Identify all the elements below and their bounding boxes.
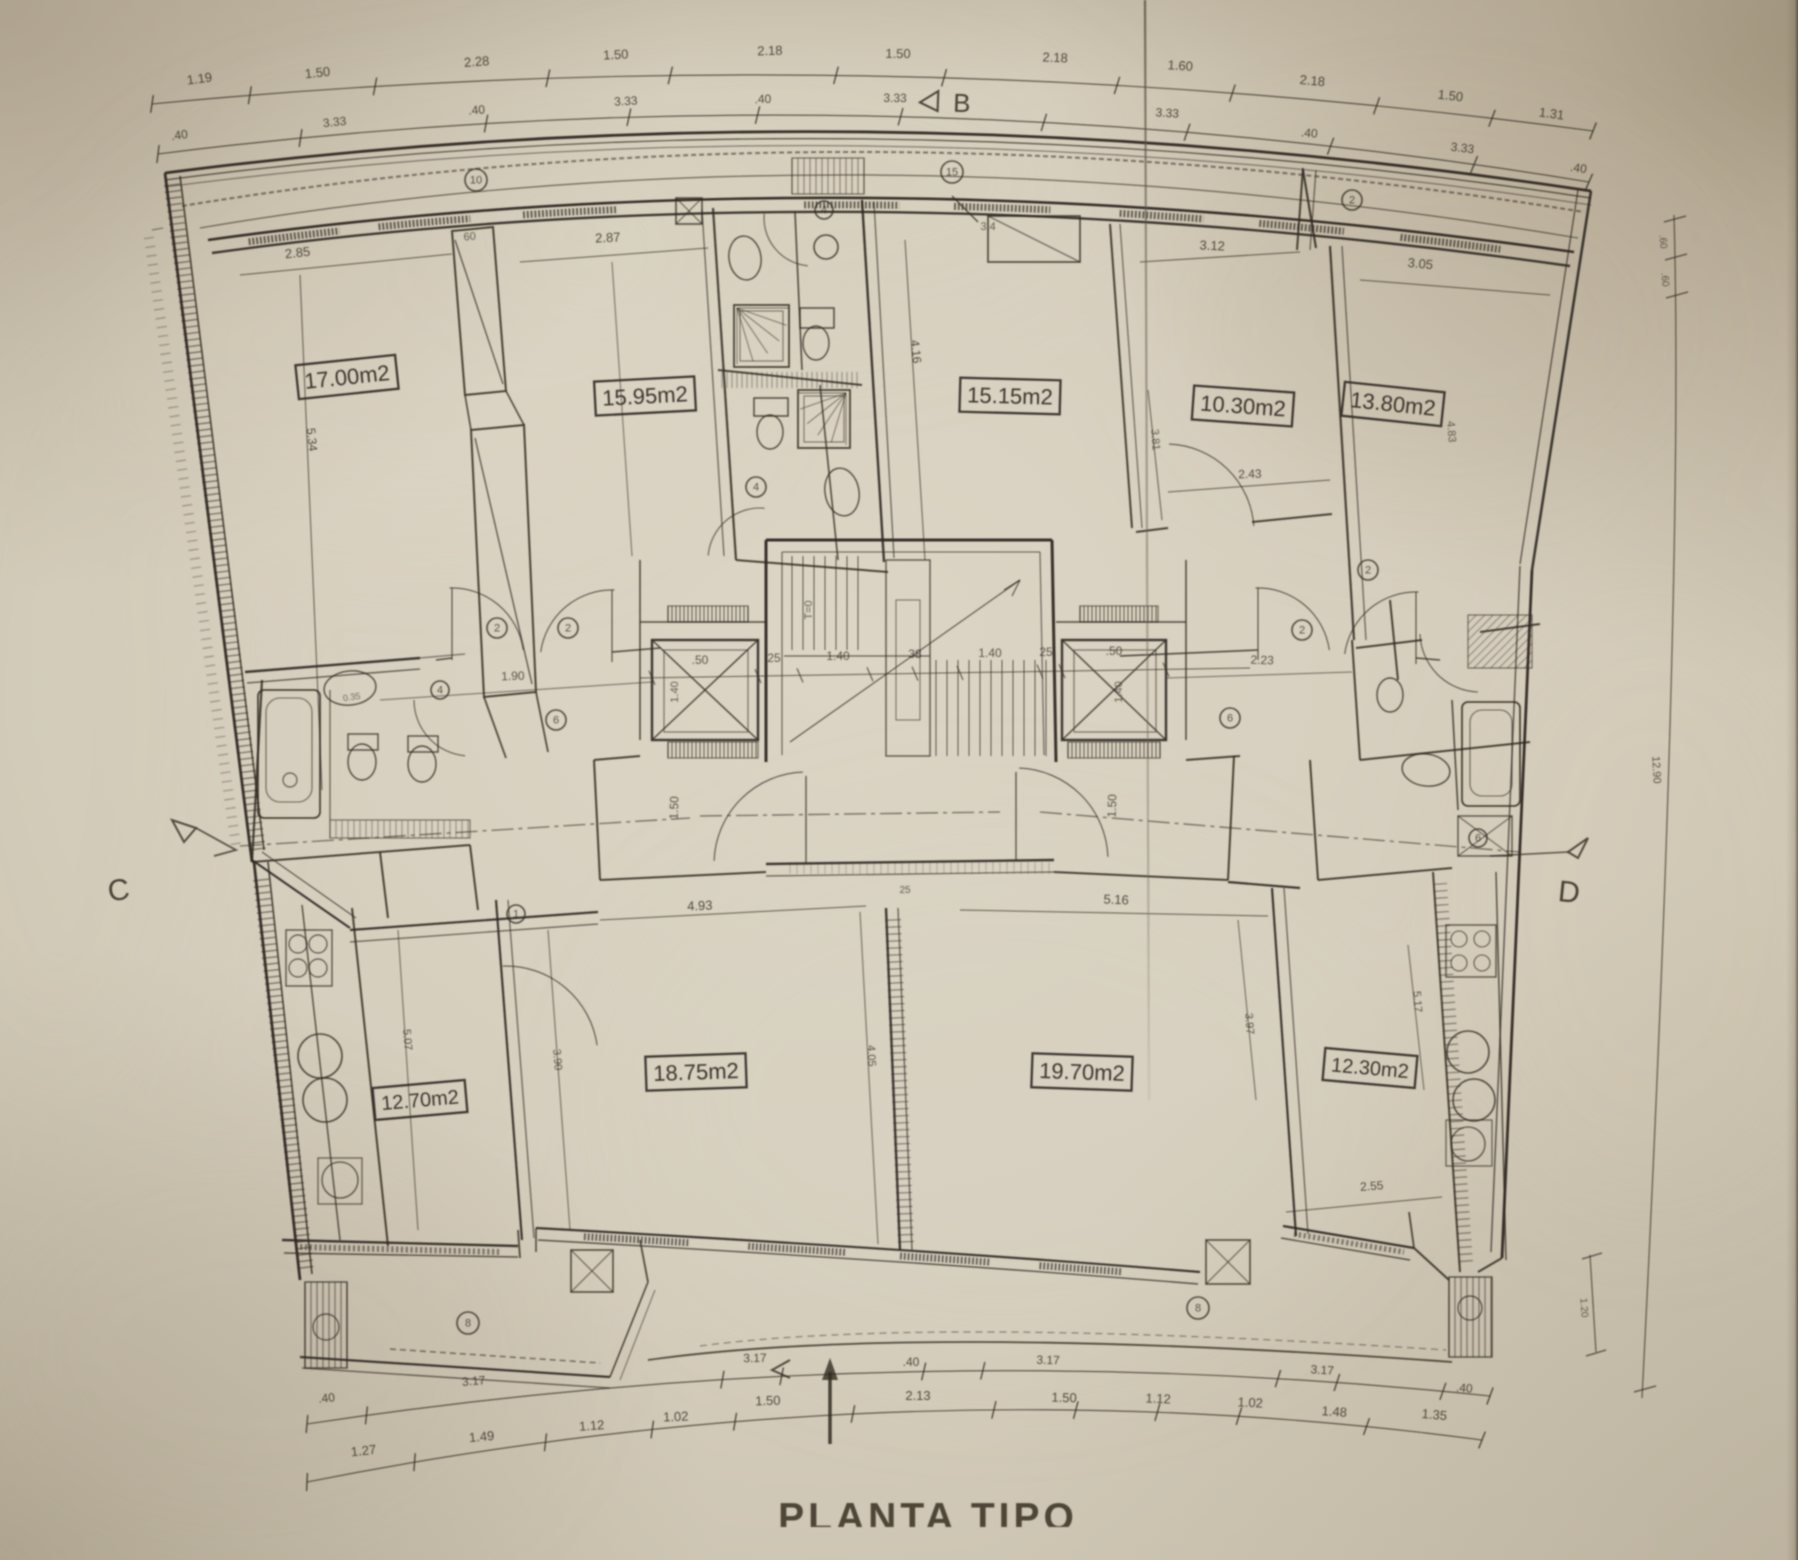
svg-text:3.81: 3.81 (1148, 429, 1161, 451)
svg-text:2.18: 2.18 (1299, 72, 1326, 89)
svg-text:3.33: 3.33 (1155, 105, 1179, 120)
svg-text:1: 1 (513, 909, 519, 921)
svg-text:3.05: 3.05 (1407, 255, 1434, 272)
svg-text:15.15m2: 15.15m2 (967, 382, 1053, 409)
svg-text:8: 8 (465, 1318, 471, 1330)
svg-text:1.50: 1.50 (1051, 1390, 1077, 1406)
svg-text:1.40: 1.40 (669, 681, 681, 702)
svg-text:6: 6 (553, 715, 559, 727)
svg-text:1.50: 1.50 (885, 46, 910, 61)
svg-text:1.48: 1.48 (1321, 1403, 1347, 1420)
svg-text:.40: .40 (468, 102, 486, 117)
svg-text:3.33: 3.33 (883, 91, 907, 105)
svg-text:2.85: 2.85 (284, 244, 311, 262)
svg-text:4.16: 4.16 (908, 339, 924, 364)
svg-text:3.17: 3.17 (743, 1351, 767, 1365)
svg-text:1.40: 1.40 (1113, 681, 1125, 702)
svg-text:1.50: 1.50 (304, 64, 331, 82)
svg-text:3.12: 3.12 (1199, 237, 1225, 253)
svg-text:1.27: 1.27 (350, 1442, 377, 1460)
svg-text:1.50: 1.50 (1105, 794, 1120, 818)
svg-text:5.34: 5.34 (304, 427, 320, 452)
svg-text:D: D (1556, 875, 1581, 910)
svg-text:19.70m2: 19.70m2 (1039, 1058, 1125, 1086)
svg-text:.40: .40 (318, 1390, 336, 1406)
svg-text:38: 38 (908, 647, 922, 661)
svg-text:.40: .40 (170, 127, 189, 143)
svg-text:2.87: 2.87 (595, 229, 621, 245)
svg-text:1.90: 1.90 (501, 669, 525, 684)
svg-text:4: 4 (437, 685, 443, 697)
svg-text:1.35: 1.35 (1421, 1406, 1448, 1423)
svg-text:1.20: 1.20 (1577, 1298, 1589, 1319)
svg-text:25: 25 (1039, 645, 1053, 659)
svg-text:2.18: 2.18 (1042, 50, 1068, 66)
svg-text:25: 25 (899, 885, 911, 896)
svg-text:4.05: 4.05 (864, 1045, 877, 1067)
svg-text:.40: .40 (1300, 125, 1318, 140)
svg-text:1.50: 1.50 (1437, 87, 1464, 105)
svg-text:2.18: 2.18 (757, 43, 783, 59)
svg-text:2: 2 (1349, 195, 1355, 207)
svg-text:1.40: 1.40 (978, 646, 1002, 660)
svg-text:2.55: 2.55 (1360, 1178, 1385, 1194)
svg-text:2.13: 2.13 (905, 1388, 930, 1403)
svg-text:B: B (953, 88, 971, 119)
svg-text:T=0: T=0 (803, 600, 815, 619)
svg-text:4: 4 (753, 482, 759, 494)
svg-text:3.90: 3.90 (550, 1049, 564, 1071)
svg-text:1.50: 1.50 (667, 796, 682, 820)
svg-text:1.49: 1.49 (468, 1428, 495, 1445)
svg-text:1.12: 1.12 (579, 1417, 605, 1434)
svg-text:18.75m2: 18.75m2 (653, 1058, 739, 1086)
svg-text:1.60: 1.60 (1167, 57, 1193, 74)
svg-text:1.02: 1.02 (1237, 1394, 1263, 1410)
svg-text:60: 60 (463, 231, 476, 244)
svg-text:.40: .40 (754, 92, 771, 106)
svg-text:5.16: 5.16 (1103, 892, 1129, 908)
svg-text:1.02: 1.02 (663, 1408, 689, 1424)
svg-text:12.90: 12.90 (1649, 756, 1662, 784)
svg-text:2: 2 (565, 623, 571, 635)
svg-text:3.17: 3.17 (1036, 1353, 1060, 1368)
svg-text:.40: .40 (1569, 160, 1588, 176)
svg-text:5.07: 5.07 (400, 1029, 414, 1051)
svg-text:3.17: 3.17 (1310, 1362, 1334, 1377)
svg-text:3.97: 3.97 (1242, 1013, 1255, 1035)
svg-text:4: 4 (821, 205, 827, 217)
svg-text:8: 8 (1195, 1303, 1201, 1315)
svg-text:3.33: 3.33 (1450, 140, 1475, 157)
svg-text:.60: .60 (1656, 234, 1668, 249)
svg-text:1.40: 1.40 (826, 649, 850, 663)
svg-text:5.17: 5.17 (1410, 991, 1423, 1013)
svg-text:4.83: 4.83 (1444, 421, 1457, 443)
svg-text:25: 25 (767, 651, 781, 665)
svg-text:.50: .50 (692, 653, 709, 667)
svg-text:3.33: 3.33 (322, 114, 347, 130)
svg-text:.60: .60 (1658, 272, 1670, 287)
svg-text:2.28: 2.28 (463, 53, 489, 70)
svg-text:3.17: 3.17 (461, 1373, 486, 1389)
svg-text:15.95m2: 15.95m2 (602, 381, 689, 410)
svg-text:10: 10 (470, 175, 482, 187)
svg-text:3.33: 3.33 (614, 93, 638, 108)
svg-text:4.93: 4.93 (687, 898, 713, 914)
svg-text:6: 6 (1227, 713, 1233, 725)
svg-text:1.50: 1.50 (755, 1393, 781, 1409)
svg-text:15: 15 (946, 167, 958, 179)
svg-text:2: 2 (494, 623, 500, 635)
svg-text:1.12: 1.12 (1145, 1390, 1171, 1406)
svg-text:2.23: 2.23 (1250, 653, 1274, 668)
svg-text:1.50: 1.50 (603, 46, 629, 62)
svg-text:2: 2 (1299, 625, 1305, 637)
svg-text:.40: .40 (903, 1355, 920, 1369)
svg-text:2: 2 (1365, 565, 1371, 577)
svg-text:2.43: 2.43 (1238, 467, 1262, 482)
svg-text:.40: .40 (1455, 1380, 1473, 1395)
svg-text:C: C (106, 873, 132, 909)
